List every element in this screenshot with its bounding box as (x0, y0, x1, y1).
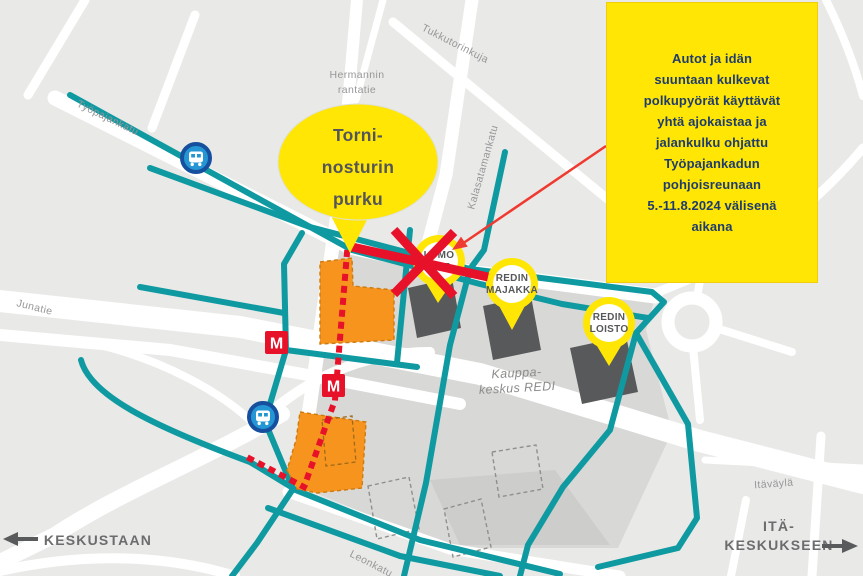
info-box-line: suuntaan kulkevat (607, 69, 817, 90)
direction-west-label: KESKUSTAAN (44, 532, 152, 548)
traffic-info-box: Autot ja idän suuntaan kulkevat polkupyö… (606, 2, 818, 283)
info-box-line: yhtä ajokaistaa ja (607, 111, 817, 132)
direction-east-label-1: ITÄ- (763, 518, 795, 534)
street-label-hermannin-2: rantatie (338, 84, 376, 96)
pin-label: MAJAKKA (486, 285, 538, 296)
transit-stop-icon (249, 403, 277, 431)
info-box-line: 5.-11.8.2024 välisenä (607, 195, 817, 216)
street-label-kauppakeskus-1: Kauppa- (491, 365, 542, 382)
metro-m-label: M (270, 336, 283, 353)
info-box-line: pohjoisreunaan (607, 174, 817, 195)
metro-m-label: M (327, 379, 340, 396)
info-box-line: Autot ja idän (607, 48, 817, 69)
direction-east-label-2: KESKUKSEEN (724, 537, 833, 553)
pin-label: LOISTO (590, 324, 629, 335)
info-box-line: polkupyörät käyttävät (607, 90, 817, 111)
construction-area-south (287, 412, 366, 493)
metro-marker: M (322, 374, 345, 397)
metro-marker: M (265, 331, 288, 354)
pin-label: REDIN (593, 312, 626, 323)
street-label-hermannin-1: Hermannin (330, 69, 385, 81)
transit-stop-icon (182, 144, 210, 172)
bubble-line: nosturin (322, 157, 394, 177)
info-box-line: jalankulku ohjattu (607, 132, 817, 153)
pin-label: REDIN (496, 273, 529, 284)
bubble-line: Torni- (333, 125, 383, 145)
info-box-line: Työpajankadun (607, 153, 817, 174)
kalasatama-traffic-map: Työpajankatu Hermannin rantatie Tukkutor… (0, 0, 863, 576)
bubble-line: purku (333, 189, 383, 209)
info-box-line: aikana (607, 216, 817, 237)
